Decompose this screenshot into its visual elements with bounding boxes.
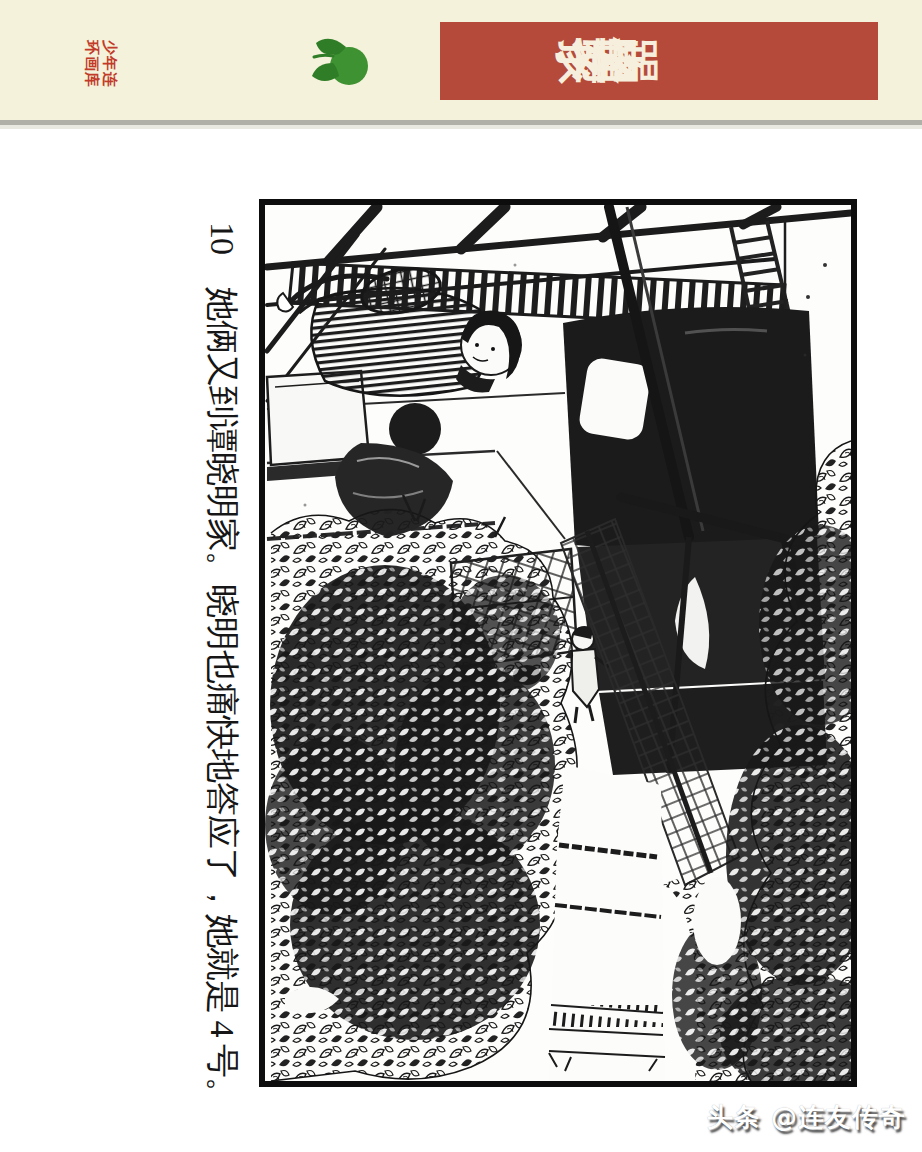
top-banner: 少年连 环画库 踢中锋的女孩子	[0, 0, 922, 120]
series-label-text: 少年连 环画库	[82, 37, 118, 91]
watermark: 头条 @连友传奇	[707, 1100, 906, 1135]
comic-caption-text: 10 她俩又到谭晓明家。晓明也痛快地答应了，她就是 4 号。	[196, 222, 248, 1022]
book-title-box: 踢中锋的女孩子	[440, 22, 878, 100]
scanned-comic-page: 少年连 环画库 踢中锋的女孩子 10 她俩又到谭晓明家。晓明也痛快地答应了，她就…	[0, 0, 922, 1152]
series-label: 少年连 环画库	[82, 37, 118, 91]
book-title: 踢中锋的女孩子	[444, 29, 874, 93]
comic-illustration	[259, 199, 857, 1087]
tangerine-icon	[308, 30, 372, 88]
comic-caption: 10 她俩又到谭晓明家。晓明也痛快地答应了，她就是 4 号。	[196, 222, 248, 1022]
banner-divider-soft	[0, 125, 922, 129]
comic-illustration-drawing	[265, 205, 851, 1081]
book-title-text: 踢中锋的女孩子	[624, 30, 694, 92]
